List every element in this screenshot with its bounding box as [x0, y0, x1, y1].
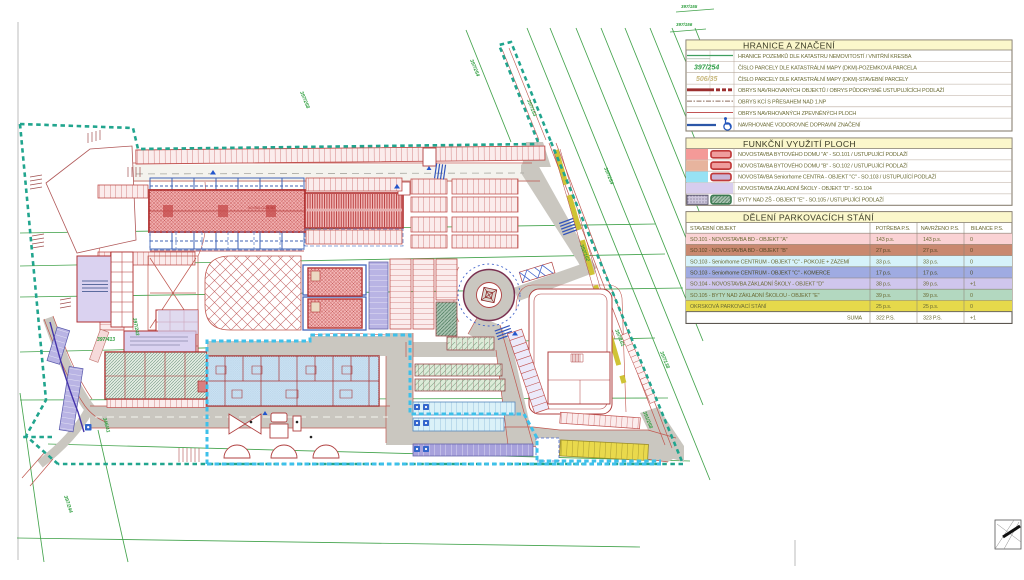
svg-text:0: 0 [970, 293, 973, 299]
svg-text:±0,000=229,50: ±0,000=229,50 [248, 205, 276, 210]
svg-text:BYTY NAD ZŠ - OBJEKT "E" - SO.: BYTY NAD ZŠ - OBJEKT "E" - SO.105 / USTU… [738, 195, 884, 203]
svg-text:NOVOSTAVBA ZÁKLADNÍ ŠKOLY - OB: NOVOSTAVBA ZÁKLADNÍ ŠKOLY - OBJEKT "D" -… [738, 185, 872, 192]
svg-text:27 p.s.: 27 p.s. [923, 248, 938, 254]
svg-text:39 p.s.: 39 p.s. [923, 282, 938, 288]
svg-text:NAVRHOVANÉ VODOROVNÉ DOPRAVNÍ: NAVRHOVANÉ VODOROVNÉ DOPRAVNÍ ZNAČENÍ [738, 121, 861, 128]
svg-text:DĚLENÍ PARKOVACÍCH STÁNÍ: DĚLENÍ PARKOVACÍCH STÁNÍ [743, 213, 874, 223]
svg-text:OBRYS NAVRHOVANÝCH ZPEVNĚNÝCH: OBRYS NAVRHOVANÝCH ZPEVNĚNÝCH PLOCH [738, 109, 856, 117]
svg-text:27 p.s.: 27 p.s. [876, 248, 891, 254]
svg-text:OBRYS NAVRHOVANÝCH OBJEKTŮ /: OBRYS NAVRHOVANÝCH OBJEKTŮ / OBRYS PŮDOR… [738, 86, 945, 94]
svg-text:143 p.s.: 143 p.s. [923, 237, 941, 243]
svg-text:OKRSKOVÁ PARKOVACÍ STÁNÍ: OKRSKOVÁ PARKOVACÍ STÁNÍ [690, 303, 767, 310]
svg-text:0: 0 [970, 271, 973, 277]
svg-text:322 P.S.: 322 P.S. [876, 316, 895, 322]
svg-text:397/155: 397/155 [681, 4, 698, 9]
svg-text:25 p.s.: 25 p.s. [876, 304, 891, 310]
svg-text:ČÍSLO PARCELY DLE KATASTRÁLNÍ: ČÍSLO PARCELY DLE KATASTRÁLNÍ MAPY (DKM)… [738, 76, 909, 83]
svg-text:506/35: 506/35 [696, 76, 718, 83]
svg-text:NOVOSTAVBA BYTOVÉHO DOMU "A" -: NOVOSTAVBA BYTOVÉHO DOMU "A" - SO.101 / … [738, 150, 908, 158]
svg-text:SUMA: SUMA [847, 316, 863, 322]
svg-text:FUNKČNÍ VYUŽITÍ PLOCH: FUNKČNÍ VYUŽITÍ PLOCH [743, 139, 856, 149]
svg-text:0: 0 [970, 237, 973, 243]
svg-text:+1: +1 [970, 316, 976, 322]
svg-text:HRANICE POZEMKŮ DLE KATASTRU N: HRANICE POZEMKŮ DLE KATASTRU NEMOVITOSTÍ… [738, 52, 912, 60]
svg-text:+1: +1 [970, 282, 976, 288]
svg-text:NOVOSTAVBA Seniorhome CENTRA -: NOVOSTAVBA Seniorhome CENTRA - OBJEKT "C… [738, 173, 937, 181]
svg-text:397/413: 397/413 [97, 337, 115, 343]
svg-text:OBRYS KCÍ S PŘESAHEM NAD 1.NP: OBRYS KCÍ S PŘESAHEM NAD 1.NP [738, 98, 827, 106]
svg-text:STAVEBNÍ OBJEKT: STAVEBNÍ OBJEKT [690, 225, 737, 232]
svg-text:39 p.s.: 39 p.s. [923, 293, 938, 299]
svg-text:SO.101 - NOVOSTAVBA BD - OBJEK: SO.101 - NOVOSTAVBA BD - OBJEKT "A" [690, 237, 788, 243]
svg-text:BILANCE P.S.: BILANCE P.S. [971, 226, 1003, 232]
svg-text:SO.103 - Seniorhome CENTRUM -: SO.103 - Seniorhome CENTRUM - OBJEKT "C"… [690, 271, 831, 277]
svg-text:397/156: 397/156 [676, 22, 693, 27]
svg-text:SO.102 - NOVOSTAVBA BD - OBJEK: SO.102 - NOVOSTAVBA BD - OBJEKT "B" [690, 248, 788, 254]
svg-text:0: 0 [970, 248, 973, 254]
svg-text:POTŘEBA P.S.: POTŘEBA P.S. [876, 224, 911, 232]
svg-text:143 p.s.: 143 p.s. [876, 237, 894, 243]
svg-text:33 p.s.: 33 p.s. [923, 259, 938, 265]
svg-text:17 p.s.: 17 p.s. [876, 271, 891, 277]
svg-text:323 P.S.: 323 P.S. [923, 316, 942, 322]
svg-text:SO.103 - Seniorhome CENTRUM -: SO.103 - Seniorhome CENTRUM - OBJEKT "C"… [690, 258, 850, 265]
svg-text:397/254: 397/254 [694, 65, 719, 72]
svg-text:NOVOSTAVBA BYTOVÉHO DOMU "B" -: NOVOSTAVBA BYTOVÉHO DOMU "B" - SO.102 / … [738, 161, 908, 169]
svg-text:NAVRŽENO P.S.: NAVRŽENO P.S. [921, 224, 960, 232]
svg-text:SO.105 - BYTY NAD ZÁKLADNÍ ŠKO: SO.105 - BYTY NAD ZÁKLADNÍ ŠKOLOU - OBJE… [690, 292, 820, 299]
svg-text:25 p.s.: 25 p.s. [923, 304, 938, 310]
svg-text:ČÍSLO PARCELY DLE KATASTRÁLNÍ: ČÍSLO PARCELY DLE KATASTRÁLNÍ MAPY (DKM)… [738, 65, 917, 72]
svg-text:38 p.s.: 38 p.s. [876, 282, 891, 288]
svg-text:HRANICE A ZNAČENÍ: HRANICE A ZNAČENÍ [743, 40, 835, 50]
svg-text:17 p.s.: 17 p.s. [923, 271, 938, 277]
svg-text:0: 0 [970, 304, 973, 310]
svg-text:33 p.s.: 33 p.s. [876, 259, 891, 265]
svg-text:0: 0 [970, 259, 973, 265]
svg-text:39 p.s.: 39 p.s. [876, 293, 891, 299]
svg-text:SO.104 - NOVOSTAVBA ZÁKLADNÍ Š: SO.104 - NOVOSTAVBA ZÁKLADNÍ ŠKOLY - OBJ… [690, 281, 824, 288]
